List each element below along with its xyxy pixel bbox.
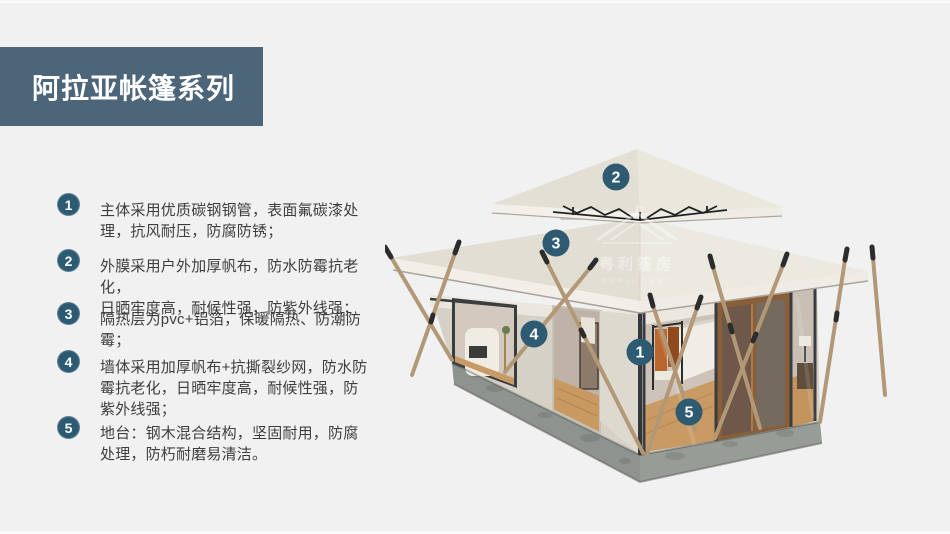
feature-number-badge: 3 xyxy=(57,302,80,325)
svg-text:5: 5 xyxy=(685,405,694,422)
feature-number-badge: 4 xyxy=(57,350,80,373)
watermark-en: YUELI TENT xyxy=(602,278,672,285)
svg-text:3: 3 xyxy=(552,236,561,253)
feature-item-1: 1 主体采用优质碳钢钢管，表面氟碳漆处 理，抗风耐压，防腐防锈； xyxy=(57,193,388,242)
feature-text: 墙体采用加厚帆布+抗撕裂纱网，防水防 霉抗老化，日晒牢度高，耐候性强，防 紫外线… xyxy=(100,350,388,420)
feature-item-5: 5 地台：钢木混合结构，坚固耐用，防腐 处理，防朽耐磨易清洁。 xyxy=(57,416,388,465)
feature-text: 主体采用优质碳钢钢管，表面氟碳漆处 理，抗风耐压，防腐防锈； xyxy=(100,193,388,242)
title-banner: 阿拉亚帐篷系列 xyxy=(0,47,263,126)
page-title: 阿拉亚帐篷系列 xyxy=(0,67,235,107)
tent-marker-3: 3 xyxy=(543,230,570,257)
tent-marker-5: 5 xyxy=(676,399,703,426)
feature-text: 隔热层为pvc+铝箔，保暖隔热、防潮防 霉； xyxy=(100,302,388,351)
page-edge-top xyxy=(0,0,950,3)
svg-text:2: 2 xyxy=(612,170,621,187)
tent-marker-2: 2 xyxy=(603,164,630,191)
feature-number-badge: 1 xyxy=(57,193,80,216)
tent-marker-1: 1 xyxy=(627,339,654,366)
tent-marker-4: 4 xyxy=(521,321,548,348)
slide: 阿拉亚帐篷系列 1 主体采用优质碳钢钢管，表面氟碳漆处 理，抗风耐压，防腐防锈；… xyxy=(0,0,950,534)
svg-text:1: 1 xyxy=(636,345,645,362)
svg-text:4: 4 xyxy=(530,327,539,344)
watermark-cn: 粤利篷房 xyxy=(599,255,675,273)
feature-text: 地台：钢木混合结构，坚固耐用，防腐 处理，防朽耐磨易清洁。 xyxy=(100,416,388,465)
feature-item-4: 4 墙体采用加厚帆布+抗撕裂纱网，防水防 霉抗老化，日晒牢度高，耐候性强，防 紫… xyxy=(57,350,388,420)
tent-illustration: 粤利篷房 YUELI TENT 2 3 4 1 5 xyxy=(385,128,950,528)
feature-item-3: 3 隔热层为pvc+铝箔，保暖隔热、防潮防 霉； xyxy=(57,302,388,351)
feature-number-badge: 2 xyxy=(57,249,80,272)
feature-number-badge: 5 xyxy=(57,416,80,439)
